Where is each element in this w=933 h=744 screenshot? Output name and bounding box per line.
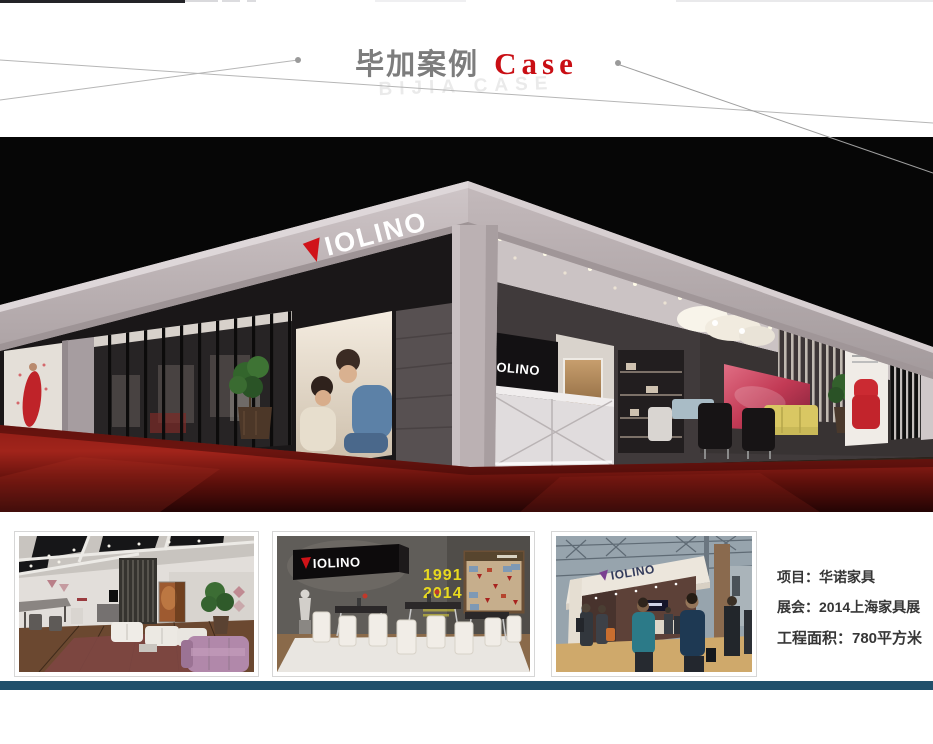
thumb1-artwork [159,582,185,622]
top-strip-tab [185,0,218,2]
top-strip-dark [0,0,185,3]
case-thumbnail-2[interactable]: IOLINO 1991 2014 [272,531,535,677]
exhibition-line: 展会：2014上海家具展 [777,597,922,617]
footer-divider-bar [0,681,933,690]
section-header: 毕加案例 Case [0,41,933,83]
couple-lightbox [296,311,392,469]
project-name-line: 项目：华诺家具 [777,567,922,587]
top-strip-tab [222,0,240,2]
thumb1-tv [109,590,118,602]
reception-desk [490,385,614,477]
top-strip-tab [247,0,256,2]
top-strip-light [375,0,466,2]
thumb1-purple-sofa [181,636,249,672]
case-page: 毕加案例 Case BIJIA CASE [0,0,933,744]
thumb2-sign-letters: IOLINO [313,554,361,571]
project-info: 项目：华诺家具 展会：2014上海家具展 工程面积：780平方米 [777,567,922,658]
area-line: 工程面积：780平方米 [777,627,922,648]
stone-column [396,303,452,471]
top-strip-light [676,0,933,2]
hero-image[interactable]: OLINO [0,137,933,512]
corner-column [446,225,502,479]
page-title-english: Case [494,46,578,82]
page-title-chinese: 毕加案例 [355,41,479,83]
case-thumbnail-1[interactable] [14,531,259,677]
year-start: 1991 [423,567,463,584]
thumb2-map-board [465,552,523,612]
case-thumbnail-3[interactable]: IOLINO [551,531,757,677]
